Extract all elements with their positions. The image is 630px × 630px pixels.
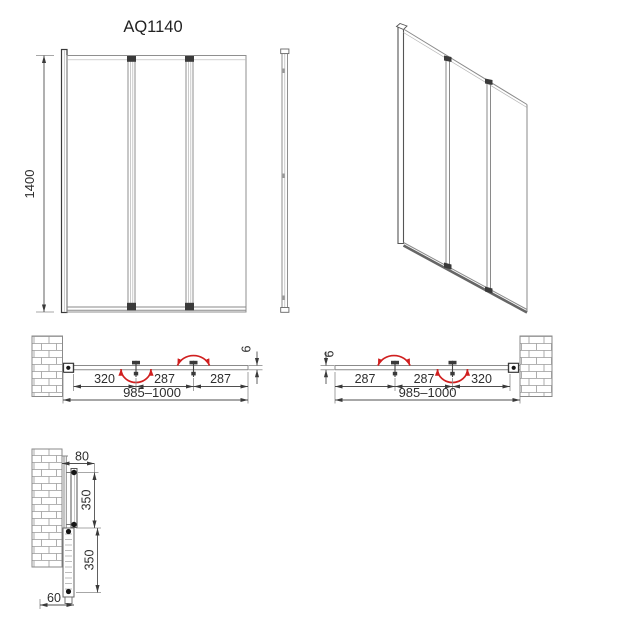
brick-wall — [32, 336, 63, 397]
screw — [66, 529, 71, 534]
perspective-view — [397, 24, 528, 313]
upper-length-label: 350 — [80, 490, 94, 511]
offset-label: 80 — [75, 450, 89, 464]
offset-dimension: 80 — [62, 450, 95, 473]
fold-pivot — [449, 361, 457, 377]
bottom-offset-label: 60 — [47, 591, 61, 605]
overall-label: 985–1000 — [399, 385, 457, 400]
segment-label: 287 — [154, 372, 175, 386]
brick-wall — [520, 336, 552, 397]
thickness-label: 6 — [323, 350, 337, 357]
model-number: AQ1140 — [123, 18, 182, 36]
wall-bracket — [64, 363, 74, 372]
fold-pivot — [190, 361, 198, 377]
height-dimension: 1400 — [22, 56, 54, 313]
hinge-mark — [283, 296, 285, 301]
screw — [71, 470, 76, 475]
bottom-rail-3d — [404, 246, 528, 313]
hinge-mark — [283, 69, 285, 74]
screen-plan — [335, 366, 520, 370]
overall-label: 985–1000 — [123, 385, 181, 400]
side-view — [281, 49, 289, 312]
fold-pivot — [132, 361, 140, 377]
front-view: 1400 — [22, 50, 246, 313]
wall-profile — [62, 50, 68, 313]
segment-label: 287 — [414, 372, 435, 386]
handle-bar — [66, 469, 77, 528]
thickness-label: 6 — [240, 345, 254, 352]
lower-length-label: 350 — [83, 550, 97, 571]
bath-screen-drawing: AQ1140 1400 — [0, 0, 630, 630]
mullion-3d-2 — [485, 79, 493, 294]
overall-dimension: 985–1000 — [63, 385, 248, 400]
segment-label: 320 — [471, 372, 492, 386]
height-label: 1400 — [22, 170, 37, 199]
wall-bracket — [509, 363, 519, 372]
overall-dimension: 985–1000 — [335, 385, 520, 400]
segment-label: 287 — [355, 372, 376, 386]
brick-wall — [32, 449, 62, 567]
glass-thickness-dimension: 6 — [240, 345, 263, 384]
segment-label: 320 — [94, 372, 115, 386]
screen-plan — [63, 366, 248, 370]
wall-profile-3d — [398, 26, 404, 244]
screw — [66, 589, 71, 594]
screen-frame — [67, 56, 246, 313]
lower-length-dimension: 350 — [76, 528, 101, 593]
mounting-detail: 80 350 350 60 — [32, 449, 101, 609]
upper-length-dimension: 350 — [76, 473, 101, 529]
plan-view-right: 287 287 320 985–1000 6 — [321, 336, 553, 404]
hinge-mullion-2 — [185, 56, 194, 310]
hinge-mark — [283, 174, 285, 179]
technical-drawing-sheet: AQ1140 1400 — [0, 0, 630, 630]
mullion-3d-1 — [444, 56, 452, 270]
hinge-mullion-1 — [127, 56, 136, 310]
plan-view-left: 320 287 287 985–1000 6 — [32, 336, 263, 404]
screw — [71, 522, 76, 527]
segment-label: 287 — [210, 372, 231, 386]
fold-pivot — [391, 361, 399, 377]
glass-thickness-dimension: 6 — [321, 350, 337, 384]
wall-mounting-profile — [63, 528, 74, 604]
